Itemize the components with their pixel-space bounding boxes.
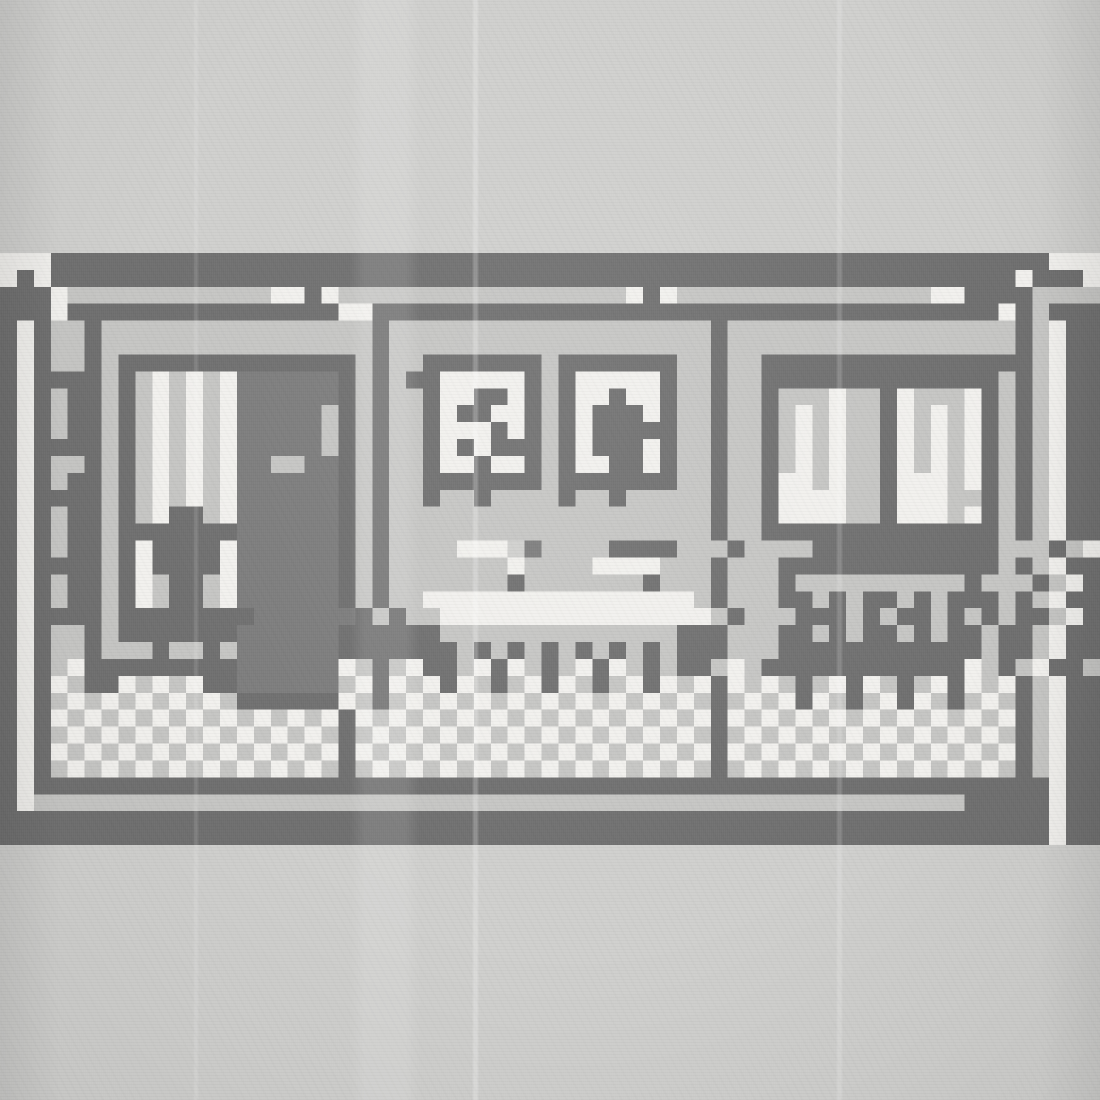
floor-right — [728, 659, 1015, 777]
curtains — [135, 371, 237, 523]
divider-left — [372, 287, 389, 794]
plant[interactable] — [152, 507, 220, 642]
window-right[interactable] — [761, 354, 998, 540]
box-left[interactable] — [457, 540, 525, 591]
divider-right — [711, 287, 728, 794]
picture-left[interactable] — [423, 354, 541, 506]
screenshot-root — [0, 0, 1100, 1100]
floor-left — [51, 659, 372, 777]
door[interactable] — [237, 371, 338, 692]
floor-middle — [389, 659, 710, 777]
picture-right[interactable] — [558, 354, 676, 506]
box-right[interactable] — [592, 540, 660, 591]
door-handle[interactable] — [271, 456, 305, 473]
wall-shelf — [51, 371, 85, 642]
